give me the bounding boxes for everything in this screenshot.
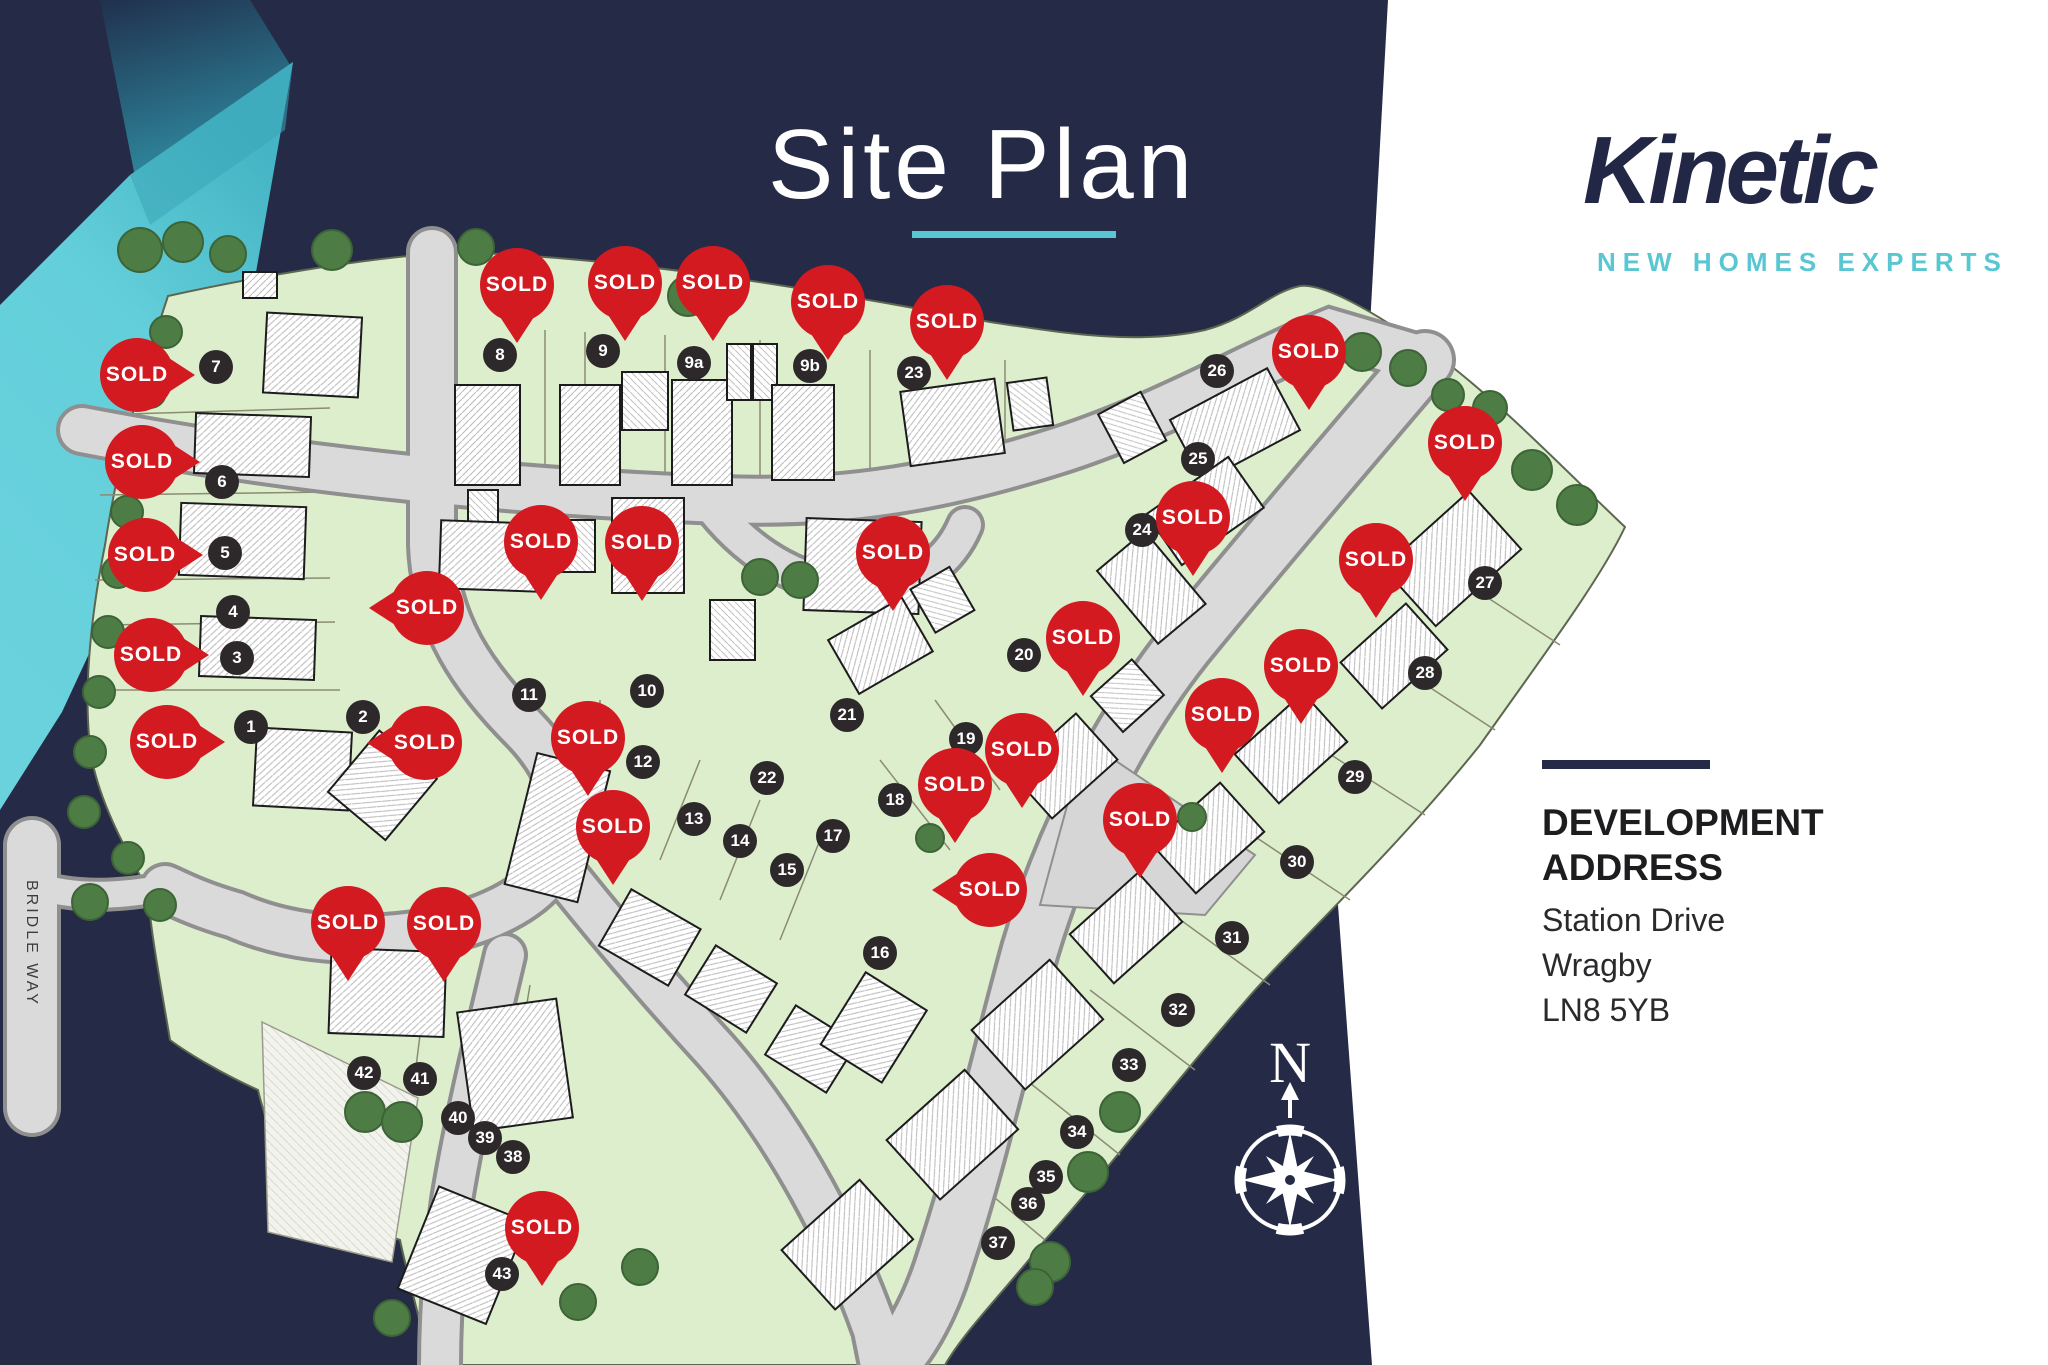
plot-badge-34[interactable]: 34 — [1060, 1115, 1094, 1149]
brand-tagline: NEW HOMES EXPERTS — [1597, 247, 2008, 278]
plot-badge-41[interactable]: 41 — [403, 1062, 437, 1096]
sold-pin-plot-9b[interactable]: SOLD — [791, 265, 865, 339]
sold-pin-label: SOLD — [486, 273, 548, 297]
plot-badge-7[interactable]: 7 — [199, 350, 233, 384]
page-title: Site Plan — [768, 108, 1288, 221]
sold-pin-label: SOLD — [611, 531, 673, 555]
sold-pin-plot-23[interactable]: SOLD — [910, 285, 984, 359]
sold-pin-plot-41[interactable]: SOLD — [407, 887, 481, 961]
plot-badge-24[interactable]: 24 — [1125, 513, 1159, 547]
sold-pin-label: SOLD — [991, 738, 1053, 762]
sold-pin-label: SOLD — [1270, 654, 1332, 678]
site-map — [32, 222, 1625, 1365]
sold-pin-plot-13[interactable]: SOLD — [576, 790, 650, 864]
plot-badge-31[interactable]: 31 — [1215, 921, 1249, 955]
sold-pin-label: SOLD — [557, 726, 619, 750]
sold-pin-label: SOLD — [594, 271, 656, 295]
sold-pin-label: SOLD — [136, 730, 198, 754]
sold-pin-label: SOLD — [413, 912, 475, 936]
sold-pin-plot-26[interactable]: SOLD — [1272, 315, 1346, 389]
sold-pin-plot-16[interactable]: SOLD — [953, 853, 1027, 927]
sold-pin-plot-6[interactable]: SOLD — [105, 425, 179, 499]
sold-pin-label: SOLD — [120, 643, 182, 667]
kinetic-logo: Kinetic — [1583, 116, 1875, 226]
sold-pin-plot-12[interactable]: SOLD — [551, 701, 625, 775]
plot-badge-9a[interactable]: 9a — [677, 346, 711, 380]
sold-pin-plot-18[interactable]: SOLD — [918, 748, 992, 822]
address-heading-line1: DEVELOPMENT — [1542, 802, 1824, 843]
plot-badge-37[interactable]: 37 — [981, 1226, 1015, 1260]
plot-badge-28[interactable]: 28 — [1408, 656, 1442, 690]
sold-pin-label: SOLD — [396, 596, 458, 620]
sold-pin-label: SOLD — [1162, 506, 1224, 530]
plot-badge-30[interactable]: 30 — [1280, 845, 1314, 879]
sold-pin-label: SOLD — [1434, 431, 1496, 455]
plot-badge-13[interactable]: 13 — [677, 802, 711, 836]
plot-badge-33[interactable]: 33 — [1112, 1048, 1146, 1082]
sold-pin-label: SOLD — [510, 530, 572, 554]
sold-pin-label: SOLD — [111, 450, 173, 474]
plot-badge-10[interactable]: 10 — [630, 674, 664, 708]
plot-badge-17[interactable]: 17 — [816, 819, 850, 853]
plot-badge-21[interactable]: 21 — [830, 698, 864, 732]
sold-pin-plot-3[interactable]: SOLD — [114, 618, 188, 692]
sold-pin-plot-42[interactable]: SOLD — [311, 886, 385, 960]
plot-badge-12[interactable]: 12 — [626, 745, 660, 779]
sold-pin-plot-24[interactable]: SOLD — [1156, 481, 1230, 555]
sold-pin-label: SOLD — [1278, 340, 1340, 364]
plot-badge-3[interactable]: 3 — [220, 641, 254, 675]
address-lines: Station Drive Wragby LN8 5YB — [1542, 898, 1725, 1033]
plot-badge-16[interactable]: 16 — [863, 936, 897, 970]
sold-pin-plot-20[interactable]: SOLD — [1046, 601, 1120, 675]
plot-badge-1[interactable]: 1 — [234, 710, 268, 744]
sold-pin-plot-7[interactable]: SOLD — [100, 338, 174, 412]
sold-pin-label: SOLD — [1052, 626, 1114, 650]
site-plan-flyer: N Site Plan Kinetic NEW HOMES EXPERTS DE… — [0, 0, 2048, 1365]
sold-pin-plot-27[interactable]: SOLD — [1428, 406, 1502, 480]
plot-badge-8[interactable]: 8 — [483, 338, 517, 372]
plot-badge-39[interactable]: 39 — [468, 1121, 502, 1155]
sold-pin-plot-8[interactable]: SOLD — [480, 248, 554, 322]
plot-badge-11[interactable]: 11 — [512, 678, 546, 712]
plot-badge-18[interactable]: 18 — [878, 783, 912, 817]
sold-pin-label: SOLD — [511, 1216, 573, 1240]
address-heading-line2: ADDRESS — [1542, 847, 1723, 888]
plot-badge-40[interactable]: 40 — [441, 1101, 475, 1135]
sold-pin-plot-43[interactable]: SOLD — [505, 1191, 579, 1265]
sold-pin-plot-29[interactable]: SOLD — [1264, 629, 1338, 703]
title-underline — [912, 231, 1116, 238]
sold-pin-plot-11[interactable]: SOLD — [504, 505, 578, 579]
sold-pin-plot-9[interactable]: SOLD — [588, 246, 662, 320]
sold-pin-plot-28[interactable]: SOLD — [1339, 523, 1413, 597]
plot-badge-4[interactable]: 4 — [216, 595, 250, 629]
sold-pin-label: SOLD — [682, 271, 744, 295]
address-rule — [1542, 760, 1710, 769]
sold-pin-label: SOLD — [862, 541, 924, 565]
sold-pin-plot-2[interactable]: SOLD — [388, 706, 462, 780]
sold-pin-plot-4[interactable]: SOLD — [390, 571, 464, 645]
sold-pin-label: SOLD — [959, 878, 1021, 902]
sold-pin-label: SOLD — [582, 815, 644, 839]
address-heading: DEVELOPMENT ADDRESS — [1542, 800, 1824, 890]
sold-pin-label: SOLD — [797, 290, 859, 314]
plot-badge-38[interactable]: 38 — [496, 1140, 530, 1174]
plot-badge-5[interactable]: 5 — [208, 536, 242, 570]
sold-pin-plot-21[interactable]: SOLD — [856, 516, 930, 590]
sold-pin-label: SOLD — [106, 363, 168, 387]
address-town: Wragby — [1542, 943, 1725, 988]
address-street: Station Drive — [1542, 898, 1725, 943]
sold-pin-plot-10[interactable]: SOLD — [605, 506, 679, 580]
sold-pin-label: SOLD — [114, 543, 176, 567]
plot-badge-25[interactable]: 25 — [1181, 442, 1215, 476]
sold-pin-label: SOLD — [394, 731, 456, 755]
bridle-way-label: BRIDLE WAY — [22, 880, 40, 1007]
sold-pin-label: SOLD — [1191, 703, 1253, 727]
plot-badge-36[interactable]: 36 — [1011, 1187, 1045, 1221]
sold-pin-plot-9a[interactable]: SOLD — [676, 246, 750, 320]
plot-badge-15[interactable]: 15 — [770, 853, 804, 887]
plot-badge-6[interactable]: 6 — [205, 465, 239, 499]
sold-pin-plot-19[interactable]: SOLD — [985, 713, 1059, 787]
sold-pin-plot-31[interactable]: SOLD — [1103, 783, 1177, 857]
plot-badge-29[interactable]: 29 — [1338, 760, 1372, 794]
sold-pin-label: SOLD — [1345, 548, 1407, 572]
plot-badge-20[interactable]: 20 — [1007, 638, 1041, 672]
plot-badge-32[interactable]: 32 — [1161, 993, 1195, 1027]
sold-pin-label: SOLD — [916, 310, 978, 334]
address-postcode: LN8 5YB — [1542, 988, 1725, 1033]
sold-pin-plot-30[interactable]: SOLD — [1185, 678, 1259, 752]
plot-badge-22[interactable]: 22 — [750, 761, 784, 795]
plot-badge-14[interactable]: 14 — [723, 824, 757, 858]
sold-pin-label: SOLD — [924, 773, 986, 797]
sold-pin-plot-1[interactable]: SOLD — [130, 705, 204, 779]
sold-pin-plot-5[interactable]: SOLD — [108, 518, 182, 592]
plot-badge-42[interactable]: 42 — [347, 1056, 381, 1090]
plot-badge-43[interactable]: 43 — [485, 1257, 519, 1291]
sold-pin-label: SOLD — [317, 911, 379, 935]
plot-badge-27[interactable]: 27 — [1468, 566, 1502, 600]
plot-badge-26[interactable]: 26 — [1200, 354, 1234, 388]
sold-pin-label: SOLD — [1109, 808, 1171, 832]
